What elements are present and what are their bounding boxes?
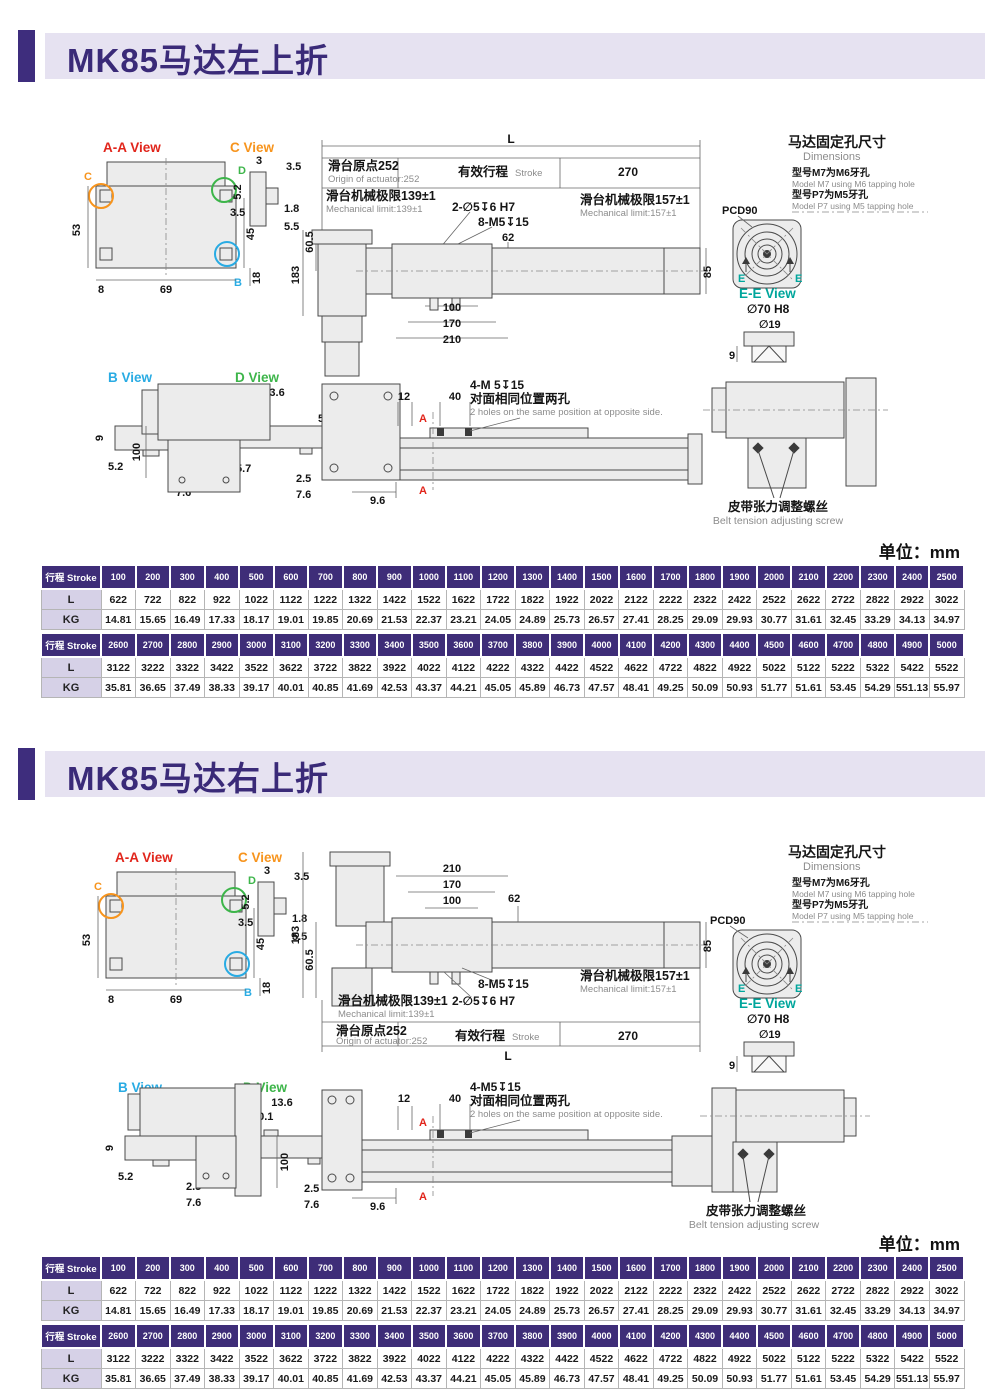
belt-cn: 皮带张力调整螺丝 xyxy=(727,499,829,514)
value-cell: 2122 xyxy=(619,1280,654,1301)
stroke-column-header: 300 xyxy=(170,565,205,589)
stroke-column-header: 3400 xyxy=(377,1324,412,1348)
plan-dim-100: 100 xyxy=(279,1153,291,1171)
stroke-header-row: 行程 Stroke2600270028002900300031003200330… xyxy=(41,633,964,657)
value-cell: 18.17 xyxy=(239,1301,274,1321)
value-cell: 1222 xyxy=(308,589,343,610)
dim-62: 62 xyxy=(508,893,520,905)
limit157-en: Mechanical limit:157±1 xyxy=(580,984,677,995)
value-cell: 4922 xyxy=(722,1348,757,1369)
value-cell: 4222 xyxy=(481,657,516,678)
value-cell: 28.25 xyxy=(653,610,688,630)
value-cell: 2822 xyxy=(860,1280,895,1301)
plan-dim-12: 12 xyxy=(398,1093,410,1105)
stroke-column-header: 2000 xyxy=(757,1256,792,1280)
holes-tap: 8-M5↧15 xyxy=(478,977,529,991)
value-cell: 29.09 xyxy=(688,1301,723,1321)
value-cell: 3222 xyxy=(136,1348,171,1369)
e-marker-right: E xyxy=(795,273,802,285)
c-dim-3-5b: 3.5 xyxy=(230,207,245,219)
stroke-header-row: 行程 Stroke2600270028002900300031003200330… xyxy=(41,1324,964,1348)
value-cell: 14.81 xyxy=(101,1301,136,1321)
section1-accent-bar xyxy=(18,30,35,82)
value-cell: 25.73 xyxy=(550,610,585,630)
dim-183: 183 xyxy=(290,926,302,944)
row-label: L xyxy=(41,589,101,610)
value-cell: 24.89 xyxy=(515,1301,550,1321)
value-cell: 5322 xyxy=(860,1348,895,1369)
stroke-column-header: 2400 xyxy=(895,565,930,589)
value-cell: 22.37 xyxy=(412,1301,447,1321)
value-cell: 1022 xyxy=(239,589,274,610)
value-cell: 3922 xyxy=(377,1348,412,1369)
stroke-column-header: 3000 xyxy=(239,633,274,657)
m7-en: Model M7 using M6 tapping hole xyxy=(792,889,915,899)
c-dim-3-5a: 3.5 xyxy=(294,871,309,883)
value-cell: 5422 xyxy=(895,657,930,678)
ee-view-label: E-E View xyxy=(739,996,796,1011)
value-cell: 4122 xyxy=(446,1348,481,1369)
value-cell: 34.97 xyxy=(929,1301,964,1321)
value-cell: 5322 xyxy=(860,657,895,678)
value-cell: 44.21 xyxy=(446,678,481,698)
limit139-cn: 滑台机械极限139±1 xyxy=(338,993,448,1008)
value-cell: 16.49 xyxy=(170,1301,205,1321)
a-marker-top: A xyxy=(419,413,427,425)
value-cell: 5522 xyxy=(929,657,964,678)
dim-L: L xyxy=(504,1049,511,1063)
stroke-column-header: 4700 xyxy=(826,1324,861,1348)
b-dim-5-2b: 5.2 xyxy=(108,461,123,473)
dim-183: 183 xyxy=(290,266,302,284)
stroke-column-header: 4100 xyxy=(619,1324,654,1348)
marker-b: B xyxy=(234,277,242,289)
dim-170: 170 xyxy=(443,318,461,330)
stroke-column-header: 3900 xyxy=(550,1324,585,1348)
origin-cn: 滑台原点252 xyxy=(328,158,399,173)
value-cell: 5122 xyxy=(791,1348,826,1369)
value-cell: 37.49 xyxy=(170,678,205,698)
value-cell: 2422 xyxy=(722,589,757,610)
value-cell: 27.41 xyxy=(619,610,654,630)
dim-210: 210 xyxy=(443,863,461,875)
value-cell: 27.41 xyxy=(619,1301,654,1321)
m7-en: Model M7 using M6 tapping hole xyxy=(792,179,915,189)
stroke-column-header: 3400 xyxy=(377,633,412,657)
value-cell: 3922 xyxy=(377,657,412,678)
c-dim-5-2: 5.2 xyxy=(232,184,244,199)
value-cell: 47.57 xyxy=(584,678,619,698)
c-dim-5-2: 5.2 xyxy=(240,894,252,909)
table-row-l: L622722822922102211221222132214221522162… xyxy=(41,589,964,610)
p7-en: Model P7 using M5 tapping hole xyxy=(792,911,914,921)
dim-100: 100 xyxy=(443,895,461,907)
value-cell: 1122 xyxy=(274,589,309,610)
pcd90-label: PCD90 xyxy=(710,915,745,927)
holes-pin: 2-∅5↧6 H7 xyxy=(452,994,515,1008)
value-cell: 33.29 xyxy=(860,1301,895,1321)
stroke-column-header: 3600 xyxy=(446,1324,481,1348)
stroke-column-header: 1300 xyxy=(515,1256,550,1280)
dim-L: L xyxy=(507,132,514,146)
origin-en: Origin of actuator:252 xyxy=(328,174,419,185)
value-cell: 18.17 xyxy=(239,610,274,630)
actuator-assembly xyxy=(312,230,700,376)
value-cell: 41.69 xyxy=(343,678,378,698)
stroke-column-header: 4800 xyxy=(860,633,895,657)
value-cell: 34.13 xyxy=(895,610,930,630)
value-cell: 2122 xyxy=(619,589,654,610)
table-row-kg: KG14.8115.6516.4917.3318.1719.0119.8520.… xyxy=(41,1301,964,1321)
plan-dim-40: 40 xyxy=(449,391,461,403)
stroke-column-header: 3700 xyxy=(481,1324,516,1348)
stroke-column-header: 2600 xyxy=(101,1324,136,1348)
stroke-column-header: 4300 xyxy=(688,633,723,657)
m7-cn: 型号M7为M6牙孔 xyxy=(792,166,870,179)
stroke-header-cell: 行程 Stroke xyxy=(41,633,101,657)
dim-9: 9 xyxy=(729,350,735,362)
value-cell: 1422 xyxy=(377,589,412,610)
value-cell: 5122 xyxy=(791,657,826,678)
stroke-header-row: 行程 Stroke1002003004005006007008009001000… xyxy=(41,1256,964,1280)
c-dim-3: 3 xyxy=(256,155,262,167)
stroke-column-header: 1000 xyxy=(412,1256,447,1280)
plan-dim-9-6: 9.6 xyxy=(370,495,385,507)
section1-header: MK85马达左上折 xyxy=(45,33,985,79)
stroke-column-header: 2200 xyxy=(826,1256,861,1280)
marker-c: C xyxy=(84,171,92,183)
value-cell: 2722 xyxy=(826,1280,861,1301)
dim-19: ∅19 xyxy=(759,1029,781,1041)
stroke-column-header: 4700 xyxy=(826,633,861,657)
holes-4m5: 4-M 5↧15 xyxy=(470,378,524,392)
value-cell: 46.73 xyxy=(550,678,585,698)
value-cell: 24.89 xyxy=(515,610,550,630)
d-dim-2-5: 2.5 xyxy=(296,473,311,485)
value-cell: 3022 xyxy=(929,1280,964,1301)
e-marker-right: E xyxy=(795,983,802,995)
stroke-column-header: 500 xyxy=(239,1256,274,1280)
stroke-column-header: 1900 xyxy=(722,1256,757,1280)
stroke-column-header: 4900 xyxy=(895,633,930,657)
unit-label-1: 单位：mm xyxy=(879,538,960,563)
value-cell: 19.01 xyxy=(274,610,309,630)
limit157-cn: 滑台机械极限157±1 xyxy=(580,968,690,983)
motor-panel-title-en: Dimensions xyxy=(803,861,861,873)
stroke-column-header: 4200 xyxy=(653,633,688,657)
stroke-column-header: 1900 xyxy=(722,565,757,589)
value-cell: 1622 xyxy=(446,1280,481,1301)
b-dim-9: 9 xyxy=(94,435,106,441)
value-cell: 45.89 xyxy=(515,678,550,698)
value-cell: 24.05 xyxy=(481,610,516,630)
value-cell: 5022 xyxy=(757,1348,792,1369)
stroke-column-header: 1100 xyxy=(446,565,481,589)
stroke-en: Stroke xyxy=(512,1032,539,1043)
stroke-column-header: 3900 xyxy=(550,633,585,657)
ee-cup-drawing xyxy=(737,332,794,362)
value-cell: 722 xyxy=(136,589,171,610)
value-cell: 1822 xyxy=(515,1280,550,1301)
plan-dim-12: 12 xyxy=(398,391,410,403)
value-cell: 38.33 xyxy=(205,678,240,698)
dim-70-h8: ∅70 H8 xyxy=(747,1012,790,1026)
value-cell: 1222 xyxy=(308,1280,343,1301)
value-cell: 551.13 xyxy=(895,678,930,698)
marker-d: D xyxy=(248,875,256,887)
stroke-column-header: 3100 xyxy=(274,1324,309,1348)
dim-100: 100 xyxy=(443,302,461,314)
value-cell: 26.57 xyxy=(584,610,619,630)
holes-tap: 8-M5↧15 xyxy=(478,215,529,229)
value-cell: 16.49 xyxy=(170,610,205,630)
p7-en: Model P7 using M5 tapping hole xyxy=(792,201,914,211)
value-cell: 622 xyxy=(101,589,136,610)
value-cell: 2922 xyxy=(895,1280,930,1301)
value-cell: 33.29 xyxy=(860,610,895,630)
stroke-column-header: 4500 xyxy=(757,633,792,657)
stroke-column-header: 2900 xyxy=(205,633,240,657)
value-cell: 3322 xyxy=(170,657,205,678)
value-cell: 5522 xyxy=(929,1348,964,1369)
stroke-column-header: 600 xyxy=(274,1256,309,1280)
c-dim-5-5: 5.5 xyxy=(284,221,299,233)
stroke-column-header: 200 xyxy=(136,1256,171,1280)
value-cell: 2922 xyxy=(895,589,930,610)
value-cell: 17.33 xyxy=(205,1301,240,1321)
dim-270: 270 xyxy=(618,165,638,179)
stroke-table-2b: 行程 Stroke2600270028002900300031003200330… xyxy=(40,1323,965,1389)
value-cell: 55.97 xyxy=(929,678,964,698)
value-cell: 3122 xyxy=(101,657,136,678)
value-cell: 17.33 xyxy=(205,610,240,630)
value-cell: 32.45 xyxy=(826,610,861,630)
stroke-column-header: 100 xyxy=(101,565,136,589)
stroke-column-header: 3000 xyxy=(239,1324,274,1348)
stroke-column-header: 4000 xyxy=(584,633,619,657)
belt-en: Belt tension adjusting screw xyxy=(689,1219,820,1231)
b-dim-7-6: 7.6 xyxy=(186,1197,201,1209)
dim-53: 53 xyxy=(71,224,83,236)
tap-hole xyxy=(437,428,444,436)
holes-en: 2 holes on the same position at opposite… xyxy=(470,1109,663,1120)
stroke-column-header: 2200 xyxy=(826,565,861,589)
stroke-column-header: 800 xyxy=(343,1256,378,1280)
stroke-column-header: 3700 xyxy=(481,633,516,657)
stroke-header-cell: 行程 Stroke xyxy=(41,1256,101,1280)
value-cell: 1122 xyxy=(274,1280,309,1301)
holes-cn: 对面相同位置两孔 xyxy=(470,391,571,406)
value-cell: 922 xyxy=(205,589,240,610)
stroke-column-header: 3500 xyxy=(412,1324,447,1348)
value-cell: 54.29 xyxy=(860,678,895,698)
e-marker-left: E xyxy=(738,273,745,285)
aa-view-label: A-A View xyxy=(115,850,173,865)
value-cell: 19.85 xyxy=(308,610,343,630)
stroke-en: Stroke xyxy=(515,168,542,179)
stroke-column-header: 2700 xyxy=(136,633,171,657)
dim-62: 62 xyxy=(502,232,514,244)
value-cell: 29.09 xyxy=(688,610,723,630)
value-cell: 31.61 xyxy=(791,1301,826,1321)
value-cell: 4422 xyxy=(550,1348,585,1369)
value-cell: 1522 xyxy=(412,1280,447,1301)
value-cell: 5222 xyxy=(826,1348,861,1369)
stroke-column-header: 1400 xyxy=(550,1256,585,1280)
section2-accent-bar xyxy=(18,748,35,800)
a-marker-top: A xyxy=(419,1117,427,1129)
stroke-column-header: 4900 xyxy=(895,1324,930,1348)
stroke-column-header: 5000 xyxy=(929,1324,964,1348)
row-label: KG xyxy=(41,678,101,698)
value-cell: 3622 xyxy=(274,657,309,678)
dim-45: 45 xyxy=(255,938,267,950)
stroke-column-header: 2800 xyxy=(170,633,205,657)
holes-pin: 2-∅5↧6 H7 xyxy=(452,200,515,214)
value-cell: 4322 xyxy=(515,1348,550,1369)
value-cell: 4722 xyxy=(653,1348,688,1369)
value-cell: 3722 xyxy=(308,657,343,678)
stroke-column-header: 2400 xyxy=(895,1256,930,1280)
value-cell: 4322 xyxy=(515,657,550,678)
value-cell: 1822 xyxy=(515,589,550,610)
drawing-right-fold: A-A View C D B 53 45 8 69 18 C View 3 3.… xyxy=(0,840,1000,1240)
m7-cn: 型号M7为M6牙孔 xyxy=(792,876,870,889)
value-cell: 1922 xyxy=(550,589,585,610)
value-cell: 4822 xyxy=(688,657,723,678)
d-dim-13-6: 13.6 xyxy=(271,1097,292,1109)
value-cell: 4222 xyxy=(481,1348,516,1369)
d-dim-2-5: 2.5 xyxy=(304,1183,319,1195)
stroke-column-header: 3100 xyxy=(274,633,309,657)
value-cell: 51.61 xyxy=(791,678,826,698)
stroke-header-cell: 行程 Stroke xyxy=(41,1324,101,1348)
value-cell: 2622 xyxy=(791,589,826,610)
stroke-column-header: 2100 xyxy=(791,1256,826,1280)
value-cell: 51.77 xyxy=(757,678,792,698)
section2-title: MK85马达右上折 xyxy=(45,751,985,800)
stroke-column-header: 2500 xyxy=(929,565,964,589)
value-cell: 22.37 xyxy=(412,610,447,630)
dim-69: 69 xyxy=(170,994,182,1006)
row-label: KG xyxy=(41,610,101,630)
limit139-en: Mechanical limit:139±1 xyxy=(338,1009,435,1020)
value-cell: 2722 xyxy=(826,589,861,610)
unit-label-2: 单位：mm xyxy=(879,1230,960,1255)
value-cell: 40.01 xyxy=(274,678,309,698)
value-cell: 3122 xyxy=(101,1348,136,1369)
stroke-column-header: 3800 xyxy=(515,633,550,657)
b-view-label: B View xyxy=(108,370,153,385)
stroke-column-header: 2500 xyxy=(929,1256,964,1280)
table-row-l: L312232223322342235223622372238223922402… xyxy=(41,657,964,678)
stroke-column-header: 3800 xyxy=(515,1324,550,1348)
plan-dim-9-6: 9.6 xyxy=(370,1201,385,1213)
stroke-column-header: 3300 xyxy=(343,633,378,657)
value-cell: 4022 xyxy=(412,657,447,678)
ee-view-label: E-E View xyxy=(739,286,796,301)
value-cell: 4122 xyxy=(446,657,481,678)
stroke-column-header: 2100 xyxy=(791,565,826,589)
b-dim-5-2b: 5.2 xyxy=(118,1171,133,1183)
d-view-label: D View xyxy=(235,370,280,385)
section1-title: MK85马达左上折 xyxy=(45,33,985,82)
stroke-header-row: 行程 Stroke1002003004005006007008009001000… xyxy=(41,565,964,589)
value-cell: 21.53 xyxy=(377,1301,412,1321)
value-cell: 20.69 xyxy=(343,610,378,630)
value-cell: 1322 xyxy=(343,589,378,610)
dim-270: 270 xyxy=(618,1029,638,1043)
stroke-column-header: 1500 xyxy=(584,565,619,589)
dim-85: 85 xyxy=(702,266,714,278)
value-cell: 3622 xyxy=(274,1348,309,1369)
c-view-label: C View xyxy=(230,140,275,155)
value-cell: 822 xyxy=(170,1280,205,1301)
ee-cup-drawing xyxy=(737,1042,794,1072)
tap-hole xyxy=(465,428,472,436)
value-cell: 1022 xyxy=(239,1280,274,1301)
dim-60-5: 60.5 xyxy=(304,949,316,970)
stroke-column-header: 700 xyxy=(308,1256,343,1280)
stroke-table-2a: 行程 Stroke1002003004005006007008009001000… xyxy=(40,1255,965,1321)
stroke-column-header: 3200 xyxy=(308,1324,343,1348)
holes-cn: 对面相同位置两孔 xyxy=(470,1093,571,1108)
plan-dim-40: 40 xyxy=(449,1093,461,1105)
marker-b: B xyxy=(244,987,252,999)
stroke-column-header: 200 xyxy=(136,565,171,589)
value-cell: 3022 xyxy=(929,589,964,610)
c-dim-1-8: 1.8 xyxy=(292,913,307,925)
value-cell: 32.45 xyxy=(826,1301,861,1321)
value-cell: 42.53 xyxy=(377,678,412,698)
value-cell: 14.81 xyxy=(101,610,136,630)
dim-69: 69 xyxy=(160,284,172,296)
value-cell: 3522 xyxy=(239,657,274,678)
value-cell: 5022 xyxy=(757,657,792,678)
dim-45: 45 xyxy=(245,228,257,240)
stroke-column-header: 1700 xyxy=(653,565,688,589)
stroke-table-1a: 行程 Stroke1002003004005006007008009001000… xyxy=(40,564,965,630)
c-view-drawing xyxy=(258,882,286,936)
stroke-column-header: 1600 xyxy=(619,1256,654,1280)
motor-panel-title-en: Dimensions xyxy=(803,151,861,163)
stroke-column-header: 4000 xyxy=(584,1324,619,1348)
value-cell: 24.05 xyxy=(481,1301,516,1321)
value-cell: 4722 xyxy=(653,657,688,678)
dim-8: 8 xyxy=(98,284,104,296)
stroke-column-header: 1200 xyxy=(481,565,516,589)
value-cell: 15.65 xyxy=(136,610,171,630)
value-cell: 4822 xyxy=(688,1348,723,1369)
motor-top-view xyxy=(142,384,270,492)
limit157-cn: 滑台机械极限157±1 xyxy=(580,192,690,207)
motor-panel-title-cn: 马达固定孔尺寸 xyxy=(788,134,886,150)
belt-cn: 皮带张力调整螺丝 xyxy=(705,1203,807,1218)
row-label: L xyxy=(41,1280,101,1301)
stroke-column-header: 4400 xyxy=(722,1324,757,1348)
value-cell: 20.69 xyxy=(343,1301,378,1321)
stroke-column-header: 4400 xyxy=(722,633,757,657)
value-cell: 1922 xyxy=(550,1280,585,1301)
stroke-column-header: 4800 xyxy=(860,1324,895,1348)
stroke-column-header: 2000 xyxy=(757,565,792,589)
value-cell: 1722 xyxy=(481,589,516,610)
dim-18: 18 xyxy=(261,982,273,994)
stroke-column-header: 5000 xyxy=(929,633,964,657)
value-cell: 4622 xyxy=(619,1348,654,1369)
stroke-column-header: 1600 xyxy=(619,565,654,589)
value-cell: 30.77 xyxy=(757,1301,792,1321)
